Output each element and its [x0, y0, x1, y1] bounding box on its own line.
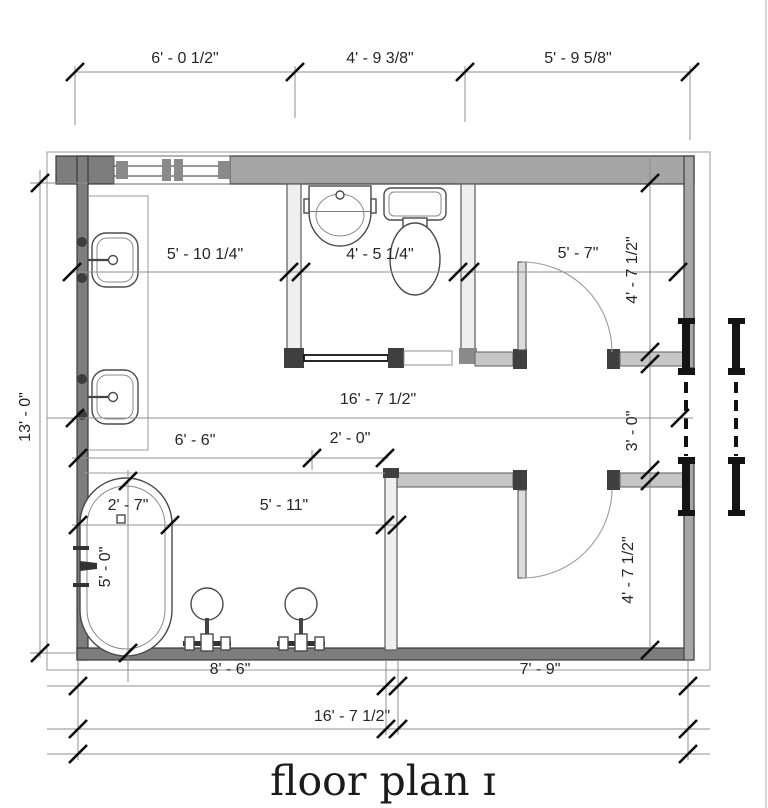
sink-tab-right — [371, 199, 376, 213]
window-mullion-center-a — [162, 159, 171, 181]
faucet-drain — [109, 256, 118, 265]
shower-valve-right — [315, 637, 324, 650]
pocket-door-panel — [304, 355, 388, 361]
entry-door-cap — [728, 368, 745, 375]
wall-closet-left-cap — [383, 468, 399, 478]
pocket-door-pocket — [404, 351, 452, 365]
pedestal-sink — [304, 186, 376, 246]
floor-plan-drawing: 6' - 0 1/2" 4' - 9 3/8" 5' - 9 5/8" 13' … — [0, 0, 768, 808]
toilet-tank — [384, 188, 446, 220]
shower-valve-left — [279, 637, 288, 650]
tub-handle — [73, 583, 89, 587]
door-top-right-room — [518, 262, 612, 352]
dim-label-bottom-right: 7' - 9" — [520, 661, 561, 678]
wall-closet-top-a — [397, 473, 513, 487]
tub-drain — [117, 515, 125, 523]
dim-label-opening: 2' - 0" — [330, 430, 371, 447]
dim-label-right-room-depth: 4' - 7 1/2" — [624, 236, 641, 303]
dim-label-top-right: 5' - 9 5/8" — [544, 50, 611, 67]
door-leaf — [518, 262, 526, 350]
dim-label-top-left: 6' - 0 1/2" — [151, 50, 218, 67]
wall-wc-right-cap — [459, 348, 477, 364]
dim-label-overall-width-middle: 16' - 7 1/2" — [340, 391, 416, 408]
window-mullion-center-b — [174, 159, 183, 181]
dim-label-tub-width: 2' - 7" — [108, 497, 149, 514]
shower-valve-left — [185, 637, 194, 650]
entry-double-doors — [678, 318, 745, 516]
window-mullion-right — [218, 161, 230, 179]
faucet-handle — [77, 374, 87, 384]
door-swing-arc — [522, 262, 612, 352]
window — [114, 156, 230, 184]
dim-label-wc-width: 4' - 5 1/4" — [346, 246, 413, 263]
entry-door-cap — [678, 457, 695, 464]
entry-door-cap — [728, 318, 745, 324]
entry-door-cap — [728, 457, 745, 464]
door-closet — [518, 490, 612, 578]
sink-faucet — [336, 191, 344, 199]
pocket-door — [304, 348, 452, 368]
dim-label-vanity-wall: 5' - 10 1/4" — [167, 246, 243, 263]
dim-label-top-middle: 4' - 9 3/8" — [346, 50, 413, 67]
sink-tab-left — [304, 199, 309, 213]
shower-valve-center — [295, 634, 307, 651]
toilet — [384, 188, 446, 295]
door2-jamb-left — [513, 470, 527, 490]
pocket-door-jamb-left — [284, 348, 304, 368]
dim-label-wet-room-span: 5' - 11" — [260, 497, 308, 514]
wall-mid-segment-a — [475, 352, 513, 366]
tub-handle — [73, 546, 89, 550]
dim-label-tub-zone: 6' - 6" — [175, 432, 216, 449]
entry-door-leaf-outer-top — [732, 324, 740, 370]
dim-label-overall-width: 16' - 7 1/2" — [314, 708, 390, 725]
wall-top — [230, 156, 694, 184]
shower-head — [191, 588, 223, 620]
pocket-door-jamb-right — [388, 348, 404, 368]
entry-door-cap — [678, 318, 695, 324]
shower-valve-right — [221, 637, 230, 650]
shower-valve-center — [201, 634, 213, 651]
dim-label-bottom-left: 8' - 6" — [210, 661, 251, 678]
dim-label-right-room-width: 5' - 7" — [558, 245, 599, 262]
entry-door-leaf-outer-bottom — [732, 464, 740, 510]
window-frame — [114, 156, 230, 184]
faucet-handle — [77, 273, 87, 283]
dim-label-passage-width: 3' - 0" — [624, 411, 641, 452]
entry-door-leaf-inner-top — [682, 324, 690, 370]
shower-head — [285, 588, 317, 620]
sink-bowl — [309, 212, 371, 246]
door-swing-arc — [522, 490, 612, 578]
shower-fitting-1 — [183, 588, 231, 651]
door1-jamb-left — [513, 349, 527, 369]
wall-mid-segment-b — [620, 352, 685, 366]
door1-jamb-right — [607, 349, 620, 369]
faucet-handle — [77, 237, 87, 247]
shower-fitting-2 — [277, 588, 325, 651]
window-mullion-left — [116, 161, 128, 179]
dim-label-tub-length: 5' - 0" — [97, 547, 114, 588]
entry-door-leaf-inner-bottom — [682, 464, 690, 510]
entry-door-cap — [728, 510, 745, 516]
wall-closet-left — [385, 470, 397, 650]
entry-door-cap — [678, 368, 695, 375]
entry-door-cap — [678, 510, 695, 516]
floor-plan-sheet: 6' - 0 1/2" 4' - 9 3/8" 5' - 9 5/8" 13' … — [0, 0, 768, 808]
drawing-title: floor plan ɪ — [270, 757, 496, 805]
dim-label-closet-depth: 4' - 7 1/2" — [620, 536, 637, 603]
faucet-drain — [109, 393, 118, 402]
door2-jamb-right — [607, 470, 620, 490]
dim-label-overall-height: 13' - 0" — [17, 392, 34, 442]
door-leaf — [518, 490, 526, 578]
